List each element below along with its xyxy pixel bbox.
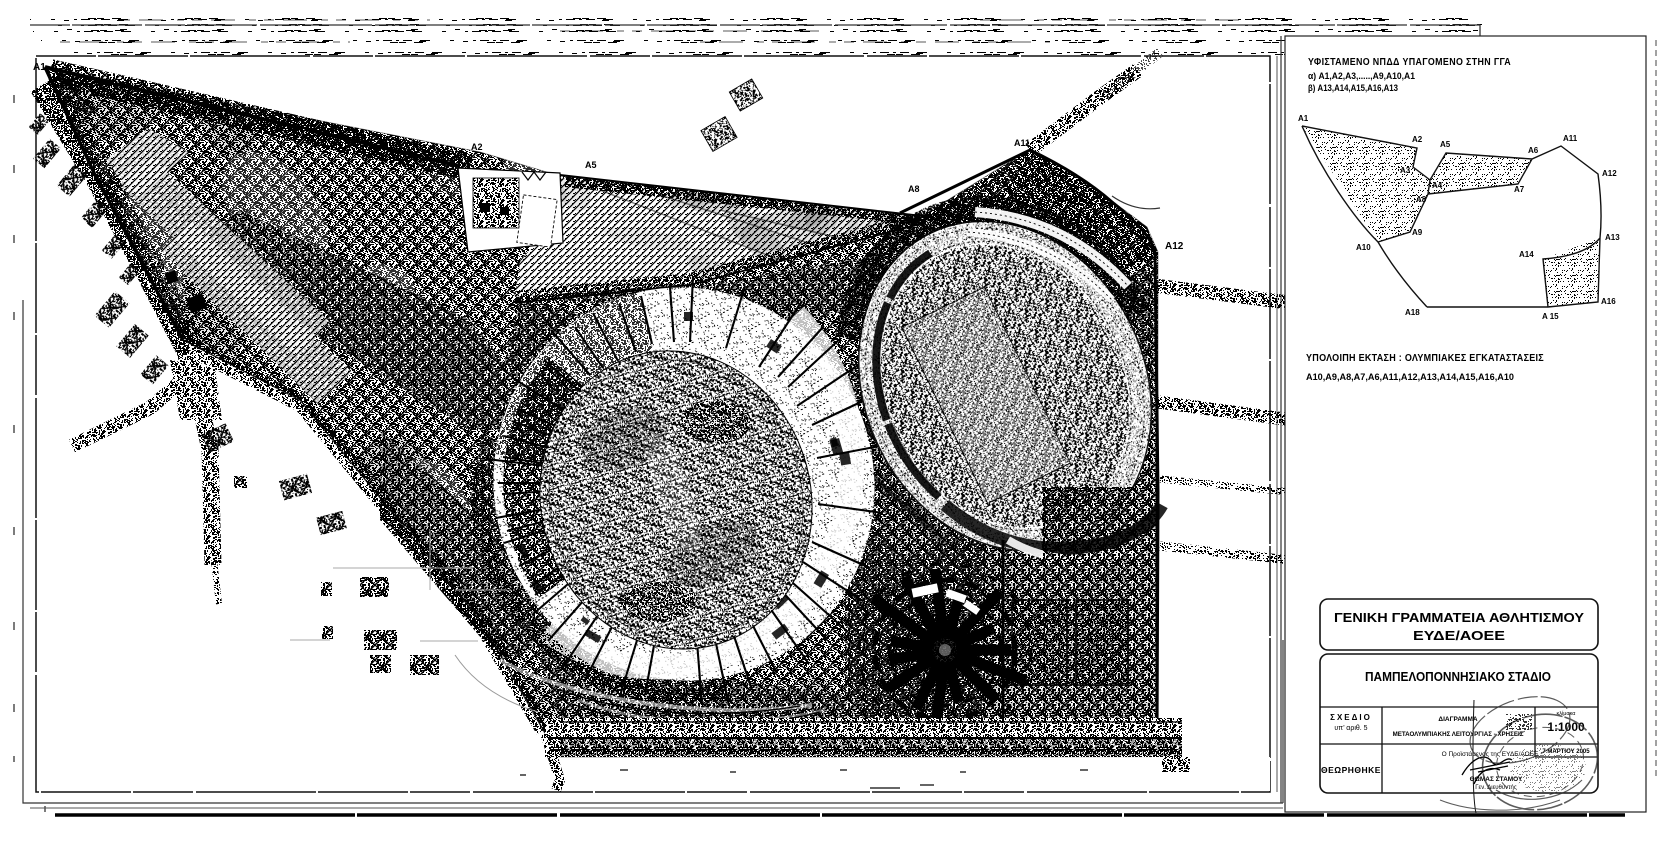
svg-text:A 15: A 15 <box>1542 312 1559 321</box>
svg-text:A11: A11 <box>1563 134 1578 143</box>
svg-text:ΘΕΩΡΗΘΗΚΕ: ΘΕΩΡΗΘΗΚΕ <box>1321 765 1381 775</box>
svg-text:ΣΧΕΔΙΟ: ΣΧΕΔΙΟ <box>1330 713 1372 722</box>
svg-text:A8: A8 <box>1416 195 1427 204</box>
svg-text:A8: A8 <box>908 184 920 194</box>
svg-text:ΔΙΑΓΡΑΜΜΑ: ΔΙΑΓΡΑΜΜΑ <box>1438 716 1477 723</box>
svg-text:α) A1,A2,A3,.....,A9,A10,A1: α) A1,A2,A3,.....,A9,A10,A1 <box>1308 71 1415 81</box>
svg-text:ΜΕΤΑΟΛΥΜΠΙΑΚΗΣ ΛΕΙΤΟΥΡΓΙΑΣ - Χ: ΜΕΤΑΟΛΥΜΠΙΑΚΗΣ ΛΕΙΤΟΥΡΓΙΑΣ - ΧΡΗΣΕΙΣ <box>1393 731 1524 738</box>
svg-text:A9: A9 <box>1412 228 1423 237</box>
svg-text:A12: A12 <box>1602 169 1617 178</box>
svg-text:A6: A6 <box>1528 146 1539 155</box>
svg-text:A1: A1 <box>33 62 46 73</box>
svg-text:A5: A5 <box>1440 140 1451 149</box>
svg-text:ΠΑΜΠΕΛΟΠΟΝΝΗΣΙΑΚΟ ΣΤΑΔΙΟ: ΠΑΜΠΕΛΟΠΟΝΝΗΣΙΑΚΟ ΣΤΑΔΙΟ <box>1365 670 1551 684</box>
svg-text:A16: A16 <box>1601 297 1616 306</box>
svg-text:A2: A2 <box>471 142 483 152</box>
svg-text:A10: A10 <box>1356 243 1371 252</box>
svg-text:ΥΦΙΣΤΑΜΕΝΟ ΝΠΔΔ ΥΠΑΓΟΜΕΝΟ ΣΤΗΝ: ΥΦΙΣΤΑΜΕΝΟ ΝΠΔΔ ΥΠΑΓΟΜΕΝΟ ΣΤΗΝ ΓΓΑ <box>1308 57 1511 68</box>
svg-text:A3: A3 <box>1400 166 1411 175</box>
svg-text:A11: A11 <box>1014 138 1030 148</box>
svg-text:A5: A5 <box>585 160 597 170</box>
svg-text:β) A13,A14,A15,A16,A13: β) A13,A14,A15,A16,A13 <box>1308 83 1398 93</box>
svg-text:A2: A2 <box>1412 135 1423 144</box>
svg-text:υπ’ αριθ. 5: υπ’ αριθ. 5 <box>1334 725 1367 732</box>
svg-text:A13: A13 <box>1605 233 1620 242</box>
svg-text:A16: A16 <box>516 620 531 629</box>
svg-text:A12: A12 <box>1165 241 1184 252</box>
svg-text:ΓΕΝΙΚΗ ΓΡΑΜΜΑΤΕΙΑ ΑΘΛΗΤΙΣΜΟΥ: ΓΕΝΙΚΗ ΓΡΑΜΜΑΤΕΙΑ ΑΘΛΗΤΙΣΜΟΥ <box>1334 610 1584 625</box>
svg-text:A14: A14 <box>1519 250 1534 259</box>
svg-text:ΥΠΟΛΟΙΠΗ ΕΚΤΑΣΗ : ΟΛΥΜΠΙΑΚΕΣ Ε: ΥΠΟΛΟΙΠΗ ΕΚΤΑΣΗ : ΟΛΥΜΠΙΑΚΕΣ ΕΓΚΑΤΑΣΤΑΣΕ… <box>1306 353 1544 364</box>
svg-text:A10,A9,A8,A7,A6,A11,A12,A13,A1: A10,A9,A8,A7,A6,A11,A12,A13,A14,A15,A16,… <box>1306 372 1514 383</box>
svg-text:A7: A7 <box>1514 185 1525 194</box>
svg-text:A1: A1 <box>1298 114 1309 123</box>
svg-text:A4: A4 <box>1432 181 1443 190</box>
svg-text:ΕΥΔΕ/ΑΟΕΕ: ΕΥΔΕ/ΑΟΕΕ <box>1413 629 1505 643</box>
svg-text:A18: A18 <box>1405 308 1420 317</box>
